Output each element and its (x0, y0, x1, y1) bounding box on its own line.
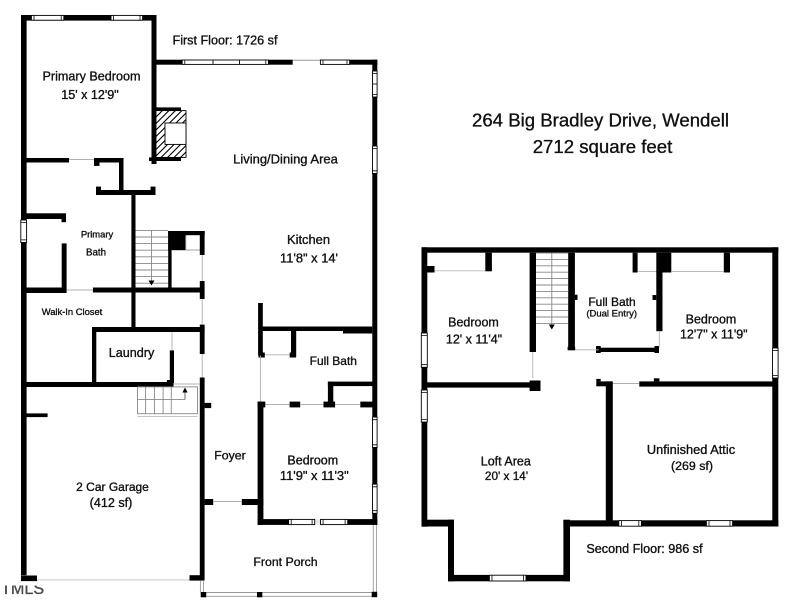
svg-text:Primary Bedroom: Primary Bedroom (43, 70, 141, 84)
svg-text:Laundry: Laundry (109, 346, 155, 360)
svg-text:(269 sf): (269 sf) (671, 459, 713, 473)
svg-text:Unfinished Attic: Unfinished Attic (647, 442, 736, 457)
svg-text:12'7" x 11'9": 12'7" x 11'9" (680, 328, 748, 342)
svg-text:264 Big Bradley Drive, Wendell: 264 Big Bradley Drive, Wendell (472, 110, 729, 131)
svg-text:Walk-In Closet: Walk-In Closet (42, 306, 103, 317)
svg-text:Bedroom: Bedroom (686, 313, 737, 327)
svg-text:Front Porch: Front Porch (253, 555, 317, 569)
svg-text:Bedroom: Bedroom (287, 454, 338, 468)
svg-text:Full Bath: Full Bath (588, 295, 635, 309)
svg-text:Kitchen: Kitchen (287, 232, 330, 247)
svg-text:11'8" x 14': 11'8" x 14' (280, 251, 338, 266)
svg-text:First Floor: 1726 sf: First Floor: 1726 sf (173, 34, 278, 48)
svg-text:Bedroom: Bedroom (448, 316, 499, 330)
svg-text:Bath: Bath (86, 248, 106, 259)
svg-text:2 Car Garage: 2 Car Garage (76, 480, 149, 494)
svg-text:11'9" x 11'3": 11'9" x 11'3" (280, 468, 349, 483)
svg-text:(Dual Entry): (Dual Entry) (586, 309, 637, 320)
svg-text:Second Floor: 986 sf: Second Floor: 986 sf (586, 542, 703, 556)
svg-text:Foyer: Foyer (214, 449, 245, 463)
svg-text:Loft Area: Loft Area (481, 455, 531, 469)
svg-text:(412 sf): (412 sf) (90, 496, 133, 510)
svg-text:15' x 12'9": 15' x 12'9" (61, 88, 119, 102)
svg-text:20' x 14': 20' x 14' (485, 469, 528, 483)
svg-text:Primary: Primary (81, 229, 114, 240)
svg-text:12' x 11'4": 12' x 11'4" (446, 333, 502, 347)
svg-text:Full Bath: Full Bath (310, 354, 357, 368)
svg-text:2712 square feet: 2712 square feet (533, 136, 673, 157)
svg-text:Living/Dining Area: Living/Dining Area (233, 152, 339, 167)
